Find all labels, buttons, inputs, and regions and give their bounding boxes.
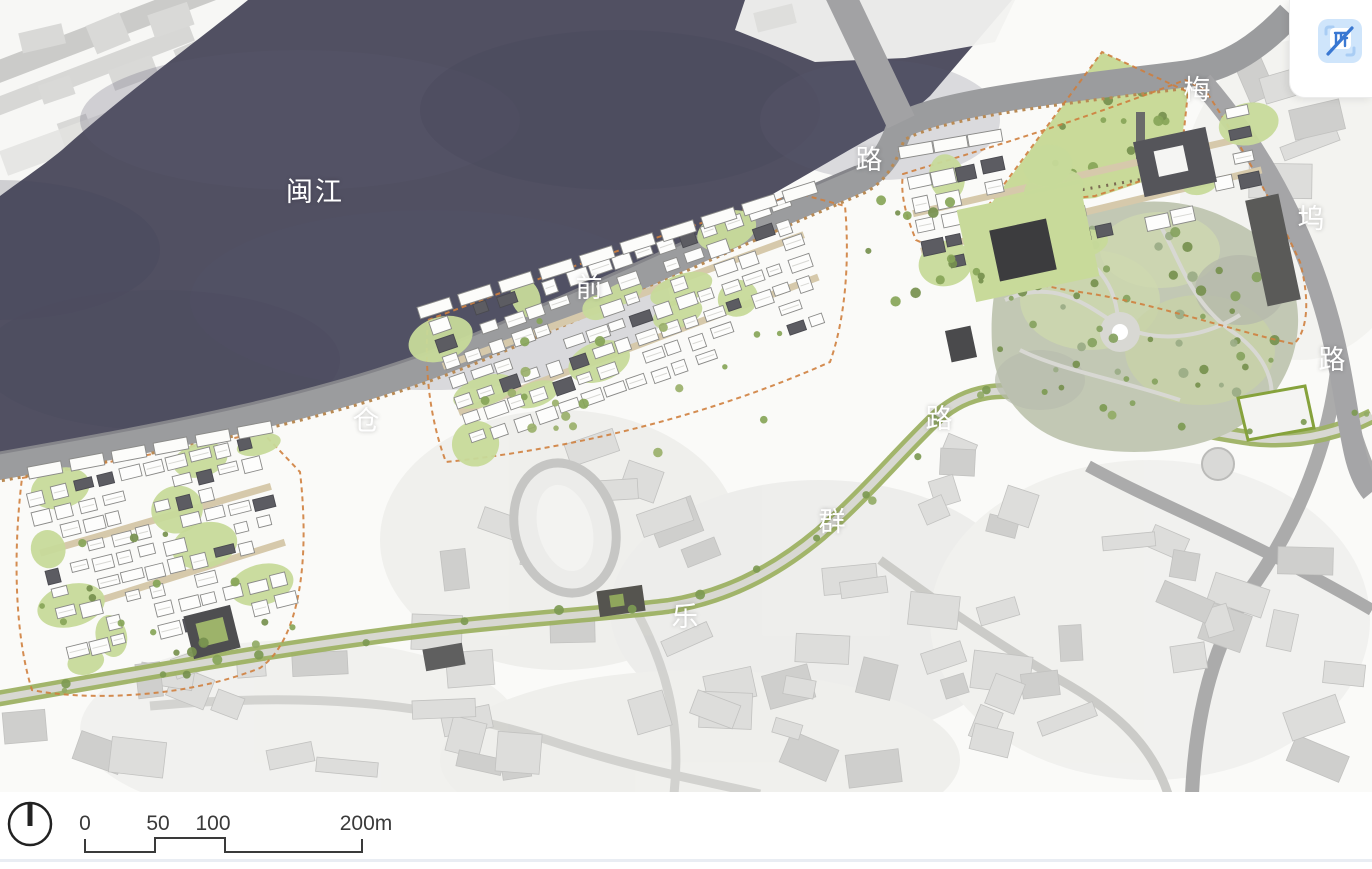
tree bbox=[1059, 385, 1065, 391]
scale-tick-0: 0 bbox=[79, 812, 91, 835]
tree bbox=[1301, 419, 1307, 425]
tree bbox=[231, 577, 240, 586]
tree bbox=[183, 671, 191, 679]
cangqian-road-label-1: 仓 bbox=[353, 406, 382, 436]
tree bbox=[520, 367, 530, 377]
tree bbox=[1029, 321, 1037, 329]
lequn-road-label-2: 群 bbox=[819, 507, 848, 537]
image-translate-disabled-icon bbox=[1318, 19, 1362, 63]
meiwu-road-label-1: 梅 bbox=[1184, 75, 1213, 105]
tree bbox=[1121, 118, 1127, 124]
tree bbox=[1175, 340, 1182, 347]
tree bbox=[86, 585, 92, 591]
scale-tick-50: 50 bbox=[146, 812, 169, 835]
tree bbox=[1127, 146, 1136, 155]
context-building bbox=[1170, 642, 1208, 673]
tree bbox=[1230, 339, 1238, 347]
tree bbox=[1152, 378, 1158, 384]
tree bbox=[1073, 361, 1081, 369]
context-building bbox=[2, 709, 47, 744]
context-building bbox=[440, 548, 469, 591]
tree bbox=[1123, 376, 1129, 382]
tree bbox=[1130, 400, 1136, 406]
tree bbox=[1100, 117, 1106, 123]
tree bbox=[928, 207, 939, 218]
tree bbox=[289, 624, 295, 630]
context-building bbox=[1323, 661, 1366, 687]
tree bbox=[160, 671, 167, 678]
tree bbox=[722, 364, 727, 369]
tree bbox=[561, 412, 570, 421]
site-building bbox=[176, 494, 193, 510]
tree bbox=[945, 197, 955, 207]
tree bbox=[865, 248, 871, 254]
tree bbox=[1077, 342, 1086, 351]
cangqian-road-label-3: 路 bbox=[856, 145, 885, 175]
tree bbox=[890, 296, 900, 306]
tree bbox=[1099, 404, 1107, 412]
scale-tick-100: 100 bbox=[195, 812, 230, 835]
map-footer: 0 50 100 200m bbox=[0, 792, 1372, 864]
tree bbox=[628, 605, 637, 614]
tree bbox=[695, 590, 705, 600]
tree bbox=[997, 346, 1003, 352]
tree bbox=[1200, 314, 1206, 320]
tree bbox=[1215, 267, 1222, 274]
tree bbox=[1073, 292, 1080, 299]
tree bbox=[947, 255, 956, 264]
tree bbox=[1009, 296, 1014, 301]
meiwu-road-label-3: 路 bbox=[1319, 345, 1348, 375]
context-building bbox=[795, 633, 850, 664]
tree bbox=[130, 534, 139, 543]
tree bbox=[579, 399, 589, 409]
context-building bbox=[1059, 625, 1083, 662]
viewer-bottom-edge bbox=[0, 859, 1372, 862]
context-building bbox=[1169, 549, 1200, 580]
tree bbox=[1096, 326, 1102, 332]
tree bbox=[1169, 270, 1178, 279]
lequn-road-label-1: 乐 bbox=[672, 602, 701, 632]
tree bbox=[1247, 428, 1253, 434]
context-building bbox=[845, 749, 902, 789]
tree bbox=[760, 416, 768, 424]
site-building bbox=[198, 488, 214, 504]
tree bbox=[1242, 364, 1249, 371]
tree bbox=[876, 195, 886, 205]
tree bbox=[254, 650, 264, 660]
tree bbox=[754, 331, 761, 338]
tree bbox=[862, 491, 870, 499]
context-building bbox=[1020, 670, 1060, 699]
tree bbox=[187, 647, 197, 657]
round-building bbox=[1202, 448, 1234, 480]
tree bbox=[198, 638, 208, 648]
tree bbox=[1042, 389, 1048, 395]
tree bbox=[977, 391, 984, 398]
tree bbox=[1087, 338, 1097, 348]
tree bbox=[1268, 358, 1273, 363]
tree bbox=[1364, 411, 1369, 416]
tree bbox=[1175, 310, 1185, 320]
tree bbox=[1195, 382, 1200, 387]
tree bbox=[521, 393, 528, 400]
tree bbox=[1108, 411, 1117, 420]
tree bbox=[1236, 352, 1245, 361]
tree bbox=[554, 605, 564, 615]
tree bbox=[1252, 272, 1262, 282]
tree bbox=[1053, 367, 1058, 372]
tree bbox=[153, 580, 161, 588]
tree bbox=[1170, 227, 1180, 237]
tree bbox=[1182, 242, 1192, 252]
tree bbox=[461, 617, 469, 625]
tree bbox=[39, 603, 45, 609]
tree bbox=[777, 331, 782, 336]
tree bbox=[1219, 383, 1224, 388]
river-label: 闽江 bbox=[286, 177, 344, 207]
tree bbox=[60, 618, 67, 625]
tree bbox=[173, 649, 179, 655]
tree bbox=[659, 323, 668, 332]
tree bbox=[118, 619, 125, 626]
panel-card bbox=[1289, 0, 1372, 98]
tree bbox=[1109, 333, 1119, 343]
tree bbox=[61, 679, 70, 688]
tree bbox=[895, 210, 900, 215]
tree bbox=[552, 399, 559, 406]
tree bbox=[753, 565, 760, 572]
tree bbox=[363, 639, 370, 646]
site-building bbox=[167, 556, 185, 574]
tree bbox=[1154, 242, 1162, 250]
tree bbox=[1178, 368, 1188, 378]
tree bbox=[1060, 304, 1066, 310]
tree bbox=[569, 422, 577, 430]
context-building bbox=[939, 448, 975, 476]
tree bbox=[481, 396, 490, 405]
tree bbox=[653, 448, 663, 458]
scale-tick-200: 200m bbox=[340, 812, 393, 835]
tree bbox=[1090, 279, 1098, 287]
site-building bbox=[105, 511, 121, 527]
tree bbox=[553, 425, 559, 431]
tree bbox=[868, 496, 877, 505]
tree bbox=[903, 211, 912, 220]
tree bbox=[1178, 423, 1186, 431]
tree bbox=[1199, 365, 1208, 374]
tree bbox=[1232, 387, 1242, 397]
tree bbox=[536, 318, 542, 324]
tree bbox=[1103, 265, 1110, 272]
site-plan-map: 闽江 仓 前 路 梅 坞 路 乐 群 路 0 50 100 200m bbox=[0, 0, 1372, 864]
lequn-road-label-3: 路 bbox=[926, 404, 955, 434]
tree bbox=[595, 336, 605, 346]
tree bbox=[675, 384, 683, 392]
tree bbox=[508, 389, 517, 398]
tree bbox=[910, 288, 921, 299]
tree bbox=[1153, 115, 1163, 125]
tree bbox=[62, 688, 67, 693]
tree bbox=[520, 337, 529, 346]
tree bbox=[252, 640, 260, 648]
context-building bbox=[412, 698, 476, 719]
context-building bbox=[1277, 547, 1333, 575]
context-building bbox=[495, 731, 542, 774]
tree bbox=[89, 594, 96, 601]
tree bbox=[1229, 308, 1235, 314]
tree bbox=[1187, 271, 1198, 282]
meiwu-road-label-2: 坞 bbox=[1298, 204, 1327, 234]
tree bbox=[261, 619, 268, 626]
tree bbox=[1148, 337, 1154, 343]
tree bbox=[936, 275, 945, 284]
tree bbox=[914, 453, 921, 460]
tree bbox=[1351, 410, 1357, 416]
site-plan-viewport: 闽江 仓 前 路 梅 坞 路 乐 群 路 0 50 100 200m bbox=[0, 0, 1372, 864]
tree bbox=[212, 655, 222, 665]
context-building bbox=[108, 736, 166, 778]
tree bbox=[978, 278, 983, 283]
tree bbox=[150, 629, 156, 635]
context-building bbox=[907, 591, 960, 629]
tree bbox=[163, 531, 169, 537]
image-translate-button[interactable] bbox=[1318, 19, 1362, 63]
tree bbox=[1196, 285, 1207, 296]
cangqian-road-label-2: 前 bbox=[576, 273, 605, 303]
tree bbox=[1230, 291, 1240, 301]
tree bbox=[1115, 369, 1121, 375]
site-building bbox=[45, 568, 61, 585]
tree bbox=[527, 423, 536, 432]
tree bbox=[78, 539, 86, 547]
